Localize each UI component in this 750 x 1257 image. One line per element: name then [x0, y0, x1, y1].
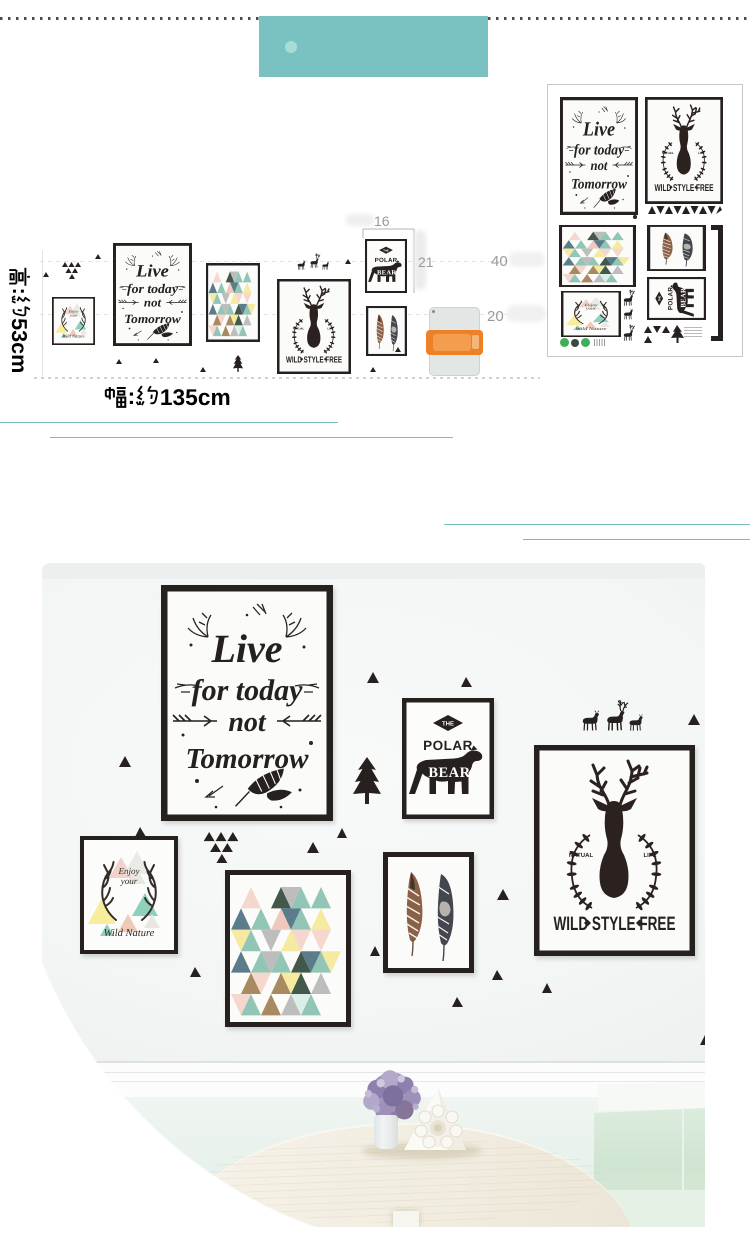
svg-text::: :	[8, 288, 32, 295]
svg-text::: :	[128, 384, 136, 409]
svg-text:53cm: 53cm	[8, 318, 31, 372]
svg-text:135cm: 135cm	[160, 385, 230, 409]
